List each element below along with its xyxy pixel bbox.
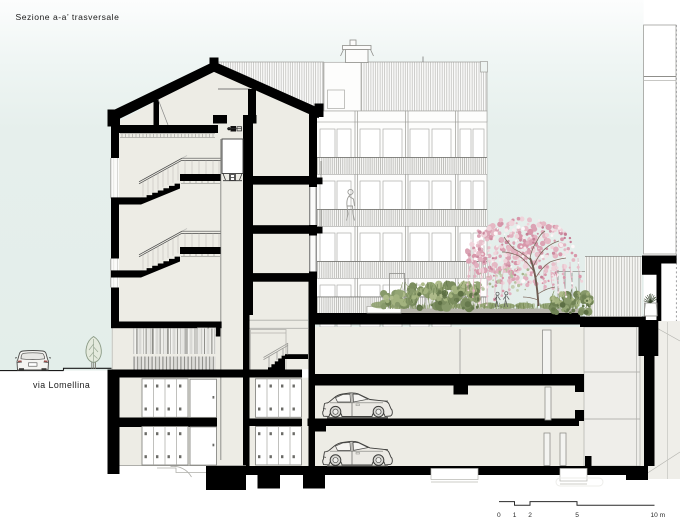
svg-text:1: 1	[513, 512, 517, 519]
svg-text:10 m: 10 m	[651, 512, 666, 519]
svg-text:via Lomellina: via Lomellina	[33, 380, 90, 390]
svg-text:5: 5	[575, 512, 579, 519]
svg-text:2: 2	[528, 512, 532, 519]
svg-text:Sezione a-a’ trasversale: Sezione a-a’ trasversale	[16, 12, 120, 22]
svg-text:0: 0	[497, 512, 501, 519]
